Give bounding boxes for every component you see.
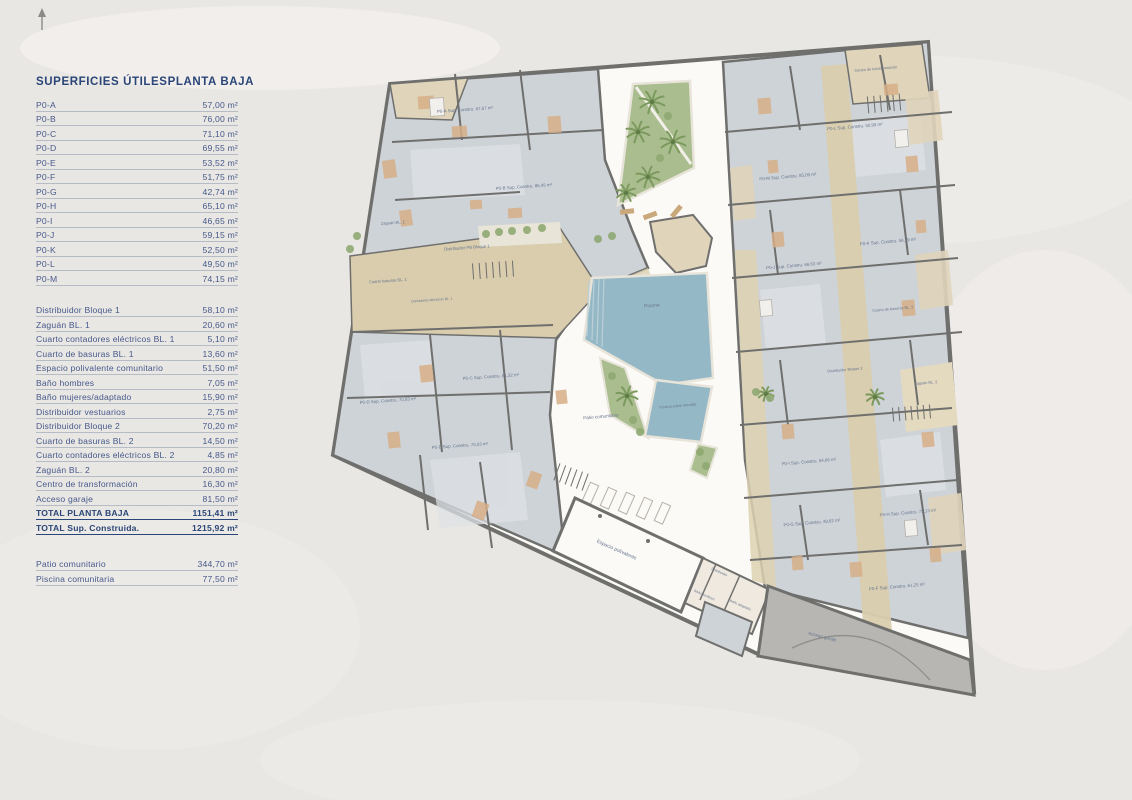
shrub-icon [696,448,704,456]
panel-floor-title: PLANTA BAJA [168,76,254,88]
common-areas-table: Distribuidor Bloque 158,10 m²Zaguán BL. … [36,303,238,506]
table-row: P0-G42,74 m² [36,184,238,199]
table-row: P0-L49,50 m² [36,257,238,272]
table-row: Acceso garaje81,50 m² [36,491,238,506]
row-value: 4,85 m² [207,450,238,460]
row-label: P0-G [36,187,57,197]
row-value: 2,75 m² [207,407,238,417]
furniture-item [915,220,926,234]
table-row: Espacio polivalente comunitario51,50 m² [36,361,238,376]
row-label: Piscina comunitaria [36,574,114,584]
table-row: Baño mujeres/adaptado15,90 m² [36,390,238,405]
shrub-icon [608,232,616,240]
furniture-item [921,432,934,448]
furniture-item [387,431,401,448]
row-label: Zaguán BL. 1 [36,320,90,330]
table-row: Cuarto de basuras BL. 214,50 m² [36,433,238,448]
row-value: 71,10 m² [202,129,238,139]
furniture-item [791,556,803,571]
panel-header: SUPERFICIES ÚTILES PLANTA BAJA [36,76,238,88]
table-row: Zaguán BL. 120,60 m² [36,317,238,332]
shrub-icon [482,230,490,238]
furniture-item [555,389,567,404]
row-value: 46,65 m² [202,216,238,226]
shrub-icon [656,154,664,162]
row-label: Cuarto de basuras BL. 1 [36,349,134,359]
table-row: P0-D69,55 m² [36,141,238,156]
row-label: P0-F [36,172,55,182]
shrub-icon [594,235,602,243]
table-row: Distribuidor Bloque 270,20 m² [36,419,238,434]
table-row: Centro de transformación16,30 m² [36,477,238,492]
table-row: P0-C71,10 m² [36,126,238,141]
furniture-item [382,159,397,179]
outdoor-areas-table: Patio comunitario344,70 m²Piscina comuni… [36,557,238,586]
units-table: P0-A57,00 m²P0-B76,00 m²P0-C71,10 m²P0-D… [36,97,238,286]
row-value: 20,80 m² [202,465,238,475]
areas-panel: SUPERFICIES ÚTILES PLANTA BAJA P0-A57,00… [36,76,238,586]
row-value: 7,05 m² [207,378,238,388]
row-label: Cuarto de basuras BL. 2 [36,436,134,446]
row-label: P0-A [36,100,56,110]
row-value: 77,50 m² [202,574,238,584]
row-label: P0-L [36,259,55,269]
shrub-icon [346,245,354,253]
furniture-item [884,83,899,95]
table-row: Cuarto contadores eléctricos BL. 15,10 m… [36,332,238,347]
row-value: 51,75 m² [202,172,238,182]
shrub-icon [538,224,546,232]
shrub-icon [353,232,361,240]
shrub-icon [752,388,760,396]
shrub-icon [523,226,531,234]
table-row: Distribuidor Bloque 158,10 m² [36,303,238,318]
row-value: 51,50 m² [202,363,238,373]
row-value: 15,90 m² [202,392,238,402]
furniture-item [757,97,771,114]
table-row: TOTAL PLANTA BAJA1151,41 m² [36,506,238,521]
furniture-item [452,125,468,137]
shrub-icon [629,416,637,424]
table-row: P0-I46,65 m² [36,213,238,228]
row-value: 20,60 m² [202,320,238,330]
row-label: Distribuidor Bloque 2 [36,421,120,431]
furniture-item [419,364,434,382]
furniture-item [929,548,941,563]
panel-title: SUPERFICIES ÚTILES [36,76,168,88]
table-row: P0-J59,15 m² [36,228,238,243]
row-label: P0-B [36,114,56,124]
table-row: Patio comunitario344,70 m² [36,557,238,572]
shrub-icon [766,394,774,402]
table-row: TOTAL Sup. Construida.1215,92 m² [36,520,238,535]
row-value: 57,00 m² [202,100,238,110]
shrub-icon [608,372,616,380]
table-row: Zaguán BL. 220,80 m² [36,462,238,477]
row-label: P0-E [36,158,56,168]
row-label: Acceso garaje [36,494,93,504]
furniture-item [849,562,862,578]
north-arrow-icon [38,8,46,30]
row-value: 74,15 m² [202,274,238,284]
row-label: P0-H [36,201,56,211]
table-row: P0-F51,75 m² [36,170,238,185]
row-label: Patio comunitario [36,559,106,569]
row-label: Baño mujeres/adaptado [36,392,131,402]
row-label: Cuarto contadores eléctricos BL. 1 [36,334,175,344]
furniture-item [470,200,483,210]
row-value: 42,74 m² [202,187,238,197]
row-value: 70,20 m² [202,421,238,431]
row-label: P0-I [36,216,53,226]
row-value: 52,50 m² [202,245,238,255]
table-row: Cuarto contadores eléctricos BL. 24,85 m… [36,448,238,463]
table-row: P0-H65,10 m² [36,199,238,214]
row-value: 16,30 m² [202,479,238,489]
shrub-icon [636,428,644,436]
pool-raised [645,380,712,442]
row-label: TOTAL PLANTA BAJA [36,508,129,518]
row-label: Centro de transformación [36,479,138,489]
row-label: Distribuidor Bloque 1 [36,305,120,315]
row-label: P0-C [36,129,56,139]
row-value: 1215,92 m² [192,523,238,533]
totals-table: TOTAL PLANTA BAJA1151,41 m²TOTAL Sup. Co… [36,506,238,535]
row-value: 69,55 m² [202,143,238,153]
shrub-icon [702,462,710,470]
furniture-item [781,424,794,440]
row-label: P0-J [36,230,54,240]
row-value: 81,50 m² [202,494,238,504]
row-value: 1151,41 m² [193,508,238,518]
shrub-icon [664,112,672,120]
furniture-item [767,160,778,174]
furniture-item [508,208,523,219]
furniture-item [547,116,561,134]
table-row: P0-M74,15 m² [36,271,238,286]
row-value: 53,52 m² [202,158,238,168]
row-label: TOTAL Sup. Construida. [36,523,139,533]
table-row: Cuarto de basuras BL. 113,60 m² [36,346,238,361]
row-label: P0-M [36,274,57,284]
row-value: 14,50 m² [202,436,238,446]
row-value: 5,10 m² [207,334,238,344]
furniture-item [771,232,784,248]
furniture-item [894,129,908,147]
table-row: P0-B76,00 m² [36,112,238,127]
table-row: Baño hombres7,05 m² [36,375,238,390]
table-row: Piscina comunitaria77,50 m² [36,571,238,586]
table-row: P0-K52,50 m² [36,242,238,257]
row-label: Distribuidor vestuarios [36,407,126,417]
shrub-icon [495,228,503,236]
table-row: P0-A57,00 m² [36,97,238,112]
furniture-item [905,156,918,173]
furniture-item [904,520,917,537]
table-row: Distribuidor vestuarios2,75 m² [36,404,238,419]
furniture-item [759,300,772,317]
row-label: P0-K [36,245,56,255]
table-row: P0-E53,52 m² [36,155,238,170]
row-value: 13,60 m² [202,349,238,359]
row-value: 59,15 m² [202,230,238,240]
row-value: 58,10 m² [202,305,238,315]
row-label: Cuarto contadores eléctricos BL. 2 [36,450,175,460]
row-value: 76,00 m² [202,114,238,124]
shrub-icon [508,227,516,235]
row-label: Baño hombres [36,378,94,388]
row-value: 65,10 m² [202,201,238,211]
row-value: 49,50 m² [202,259,238,269]
row-label: Espacio polivalente comunitario [36,363,163,373]
row-label: P0-D [36,143,56,153]
row-value: 344,70 m² [198,559,239,569]
row-label: Zaguán BL. 2 [36,465,90,475]
